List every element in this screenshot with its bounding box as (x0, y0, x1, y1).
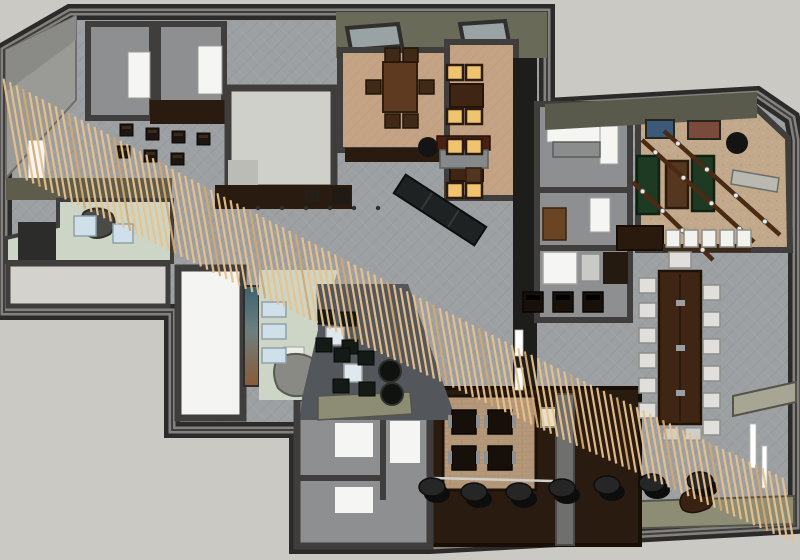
conference-chair (639, 378, 656, 393)
beam-light (681, 175, 686, 180)
drum-light (726, 132, 748, 154)
conference-chair (639, 278, 656, 293)
beam-light (709, 201, 714, 206)
pouf-top (419, 478, 445, 496)
kitchen-box (305, 190, 319, 202)
stool-top (526, 295, 540, 300)
stool-top (174, 133, 183, 136)
table-clip (676, 300, 685, 306)
lit-seat (466, 109, 482, 124)
restroom-fixture (390, 421, 420, 463)
ceiling-dot (256, 206, 260, 210)
beam-light (763, 219, 768, 224)
booth-seat (488, 446, 512, 470)
bar-stool (666, 230, 680, 247)
stool (146, 128, 159, 140)
dining-chair (385, 48, 400, 62)
conference-chair (703, 339, 720, 354)
office-panel-white (590, 198, 610, 232)
whiteboard (128, 52, 150, 98)
stool-top (556, 295, 570, 300)
storage-room-floor (8, 264, 168, 306)
lounge-chair (333, 379, 349, 393)
conference-chair (639, 403, 656, 418)
conference-chair (703, 420, 720, 435)
bar-stool (737, 230, 751, 247)
lounge-chair (358, 351, 374, 365)
lit-seat (466, 65, 482, 80)
office-desk (543, 208, 566, 240)
lounge-chair (334, 348, 350, 362)
conference-chair (639, 353, 656, 368)
dining-chair (419, 80, 434, 94)
stool-top (148, 130, 157, 133)
bar-stool (702, 230, 716, 247)
conference-chair (703, 366, 720, 381)
lit-seat (466, 139, 482, 154)
pouf-top (506, 483, 532, 501)
lit-seat (447, 65, 463, 80)
pouf-top (461, 483, 487, 501)
ceiling-dot (280, 206, 284, 210)
ceiling-dot (376, 206, 380, 210)
dining-right-table (450, 84, 483, 107)
restrooms-floor (297, 398, 430, 546)
wall-light (750, 424, 756, 468)
dining-chair (403, 48, 418, 62)
booth-armrest (476, 451, 480, 464)
ceiling-dot (352, 206, 356, 210)
entry-dark-doorway (18, 222, 56, 260)
beam-light (700, 247, 705, 252)
booth-armrest (512, 415, 516, 428)
conference-chair (703, 393, 720, 408)
office-wood-panel (603, 252, 628, 284)
booth-armrest (484, 415, 488, 428)
lit-seat (447, 109, 463, 124)
stool (172, 131, 185, 143)
stool (120, 124, 133, 136)
booth-seat (488, 410, 512, 434)
dining-chair (403, 114, 418, 128)
stool-top (173, 155, 182, 158)
bench-seat (262, 302, 286, 317)
table-clip (676, 390, 685, 396)
restrooms (297, 398, 430, 546)
skylight (347, 24, 402, 50)
conference-chair (703, 312, 720, 327)
stool-top (586, 295, 600, 300)
beam-light (640, 189, 645, 194)
beam-light (653, 150, 658, 155)
stair-room-step (228, 160, 258, 188)
round-pouf (381, 383, 403, 405)
booth-armrest (512, 451, 516, 464)
round-table (418, 137, 438, 157)
bench-seat (262, 324, 286, 339)
bar-counter (617, 226, 663, 250)
foot-pad (685, 428, 701, 440)
booth-armrest (448, 415, 452, 428)
dining-chair (385, 114, 400, 128)
ceiling-dot (328, 206, 332, 210)
counter-gray (553, 142, 600, 157)
restroom-fixture (335, 487, 373, 513)
stool-top (146, 152, 155, 155)
lit-seat (466, 183, 482, 198)
floor-plan-canvas (0, 0, 800, 560)
whiteboard (198, 46, 222, 94)
conference-head-chair (669, 252, 691, 268)
soffit-south-corridor (215, 185, 352, 209)
dining-chair (366, 80, 381, 94)
picture-frame (688, 121, 720, 139)
bar-stool (720, 230, 734, 247)
conference-chair (703, 285, 720, 300)
lit-seat (447, 139, 463, 154)
dining-left-table (383, 62, 417, 112)
restroom-fixture (335, 423, 373, 457)
booth-armrest (484, 451, 488, 464)
lounge-chair (359, 382, 375, 396)
bar-stool (684, 230, 698, 247)
table-clip (676, 345, 685, 351)
office-sofa-white (543, 252, 577, 284)
beam-light (734, 193, 739, 198)
pouf-top (549, 479, 575, 497)
stool-top (122, 126, 131, 129)
conference-chair (639, 328, 656, 343)
conference-chair (639, 303, 656, 318)
floor-plan-rendering (0, 0, 800, 560)
office-stools (523, 292, 603, 312)
mural-panel (244, 286, 259, 386)
floor-mat (74, 216, 96, 236)
ceiling-dot (304, 206, 308, 210)
lit-seat (447, 183, 463, 198)
lounge-chair (316, 338, 332, 352)
bench-seat (262, 348, 286, 363)
white-room (178, 268, 243, 418)
bar-stools (666, 230, 751, 247)
wardrobe-white (600, 126, 618, 164)
booth-seat (452, 446, 476, 470)
booth-armrest (448, 451, 452, 464)
stool-top (199, 135, 208, 138)
booth-seat (452, 410, 476, 434)
pouf-top (594, 476, 620, 494)
office-armchair (581, 254, 600, 281)
round-pouf (379, 360, 401, 382)
kitchen-box (332, 188, 350, 204)
game-table-wood (666, 161, 688, 208)
beam-light (705, 167, 710, 172)
stool (171, 153, 184, 165)
booth-armrest (476, 415, 480, 428)
beam-light (676, 141, 681, 146)
stool (197, 133, 210, 145)
beam-light (660, 208, 665, 213)
